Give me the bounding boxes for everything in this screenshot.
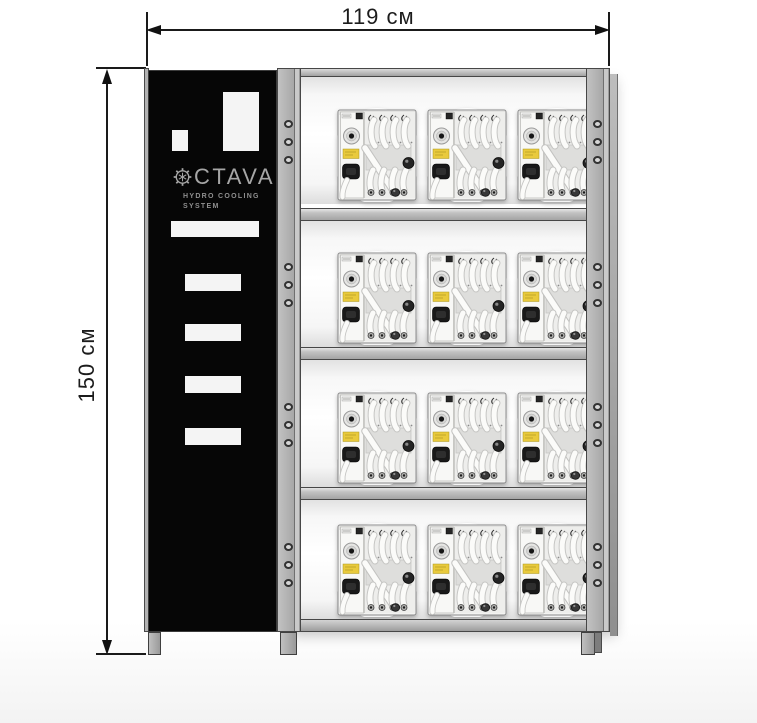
cooling-unit (337, 521, 417, 617)
shelf-bar (277, 347, 610, 360)
front-door-panel: CTAVA HYDRO COOLING SYSTEM (148, 70, 277, 632)
panel-vent (185, 376, 241, 393)
brand-subtitle-line1: HYDRO COOLING (183, 192, 260, 202)
cooling-unit (337, 106, 417, 202)
cabinet-leg (148, 632, 161, 655)
rack-post-left (277, 68, 301, 632)
shelf-bar (277, 208, 610, 221)
panel-vent-wide (171, 221, 259, 237)
cooling-unit (517, 106, 597, 202)
panel-vent (185, 428, 241, 445)
mounting-hole (593, 421, 602, 429)
cooling-unit (517, 249, 597, 345)
cabinet-leg (280, 632, 297, 655)
mounting-hole (284, 421, 293, 429)
cooling-unit (337, 389, 417, 485)
rack-post-right (586, 68, 610, 632)
mounting-hole (284, 138, 293, 146)
shelf-bar (277, 487, 610, 500)
cooling-unit (427, 249, 507, 345)
mounting-hole (284, 156, 293, 164)
shelf-rack (277, 68, 610, 632)
mounting-hole (593, 439, 602, 447)
mounting-hole (593, 120, 602, 128)
cooling-unit (517, 389, 597, 485)
mounting-hole (593, 561, 602, 569)
panel-window-large (223, 92, 259, 151)
brand-subtitle: HYDRO COOLING SYSTEM (183, 192, 260, 212)
rack-level (301, 360, 586, 487)
brand-subtitle-line2: SYSTEM (183, 202, 260, 212)
mounting-hole (284, 579, 293, 587)
cooling-unit (427, 521, 507, 617)
mounting-hole (284, 403, 293, 411)
mounting-hole (284, 120, 293, 128)
rack-level (301, 77, 586, 204)
cabinet-side-depth (610, 74, 618, 636)
cooling-unit (427, 389, 507, 485)
octava-gear-icon (173, 166, 192, 188)
mounting-hole (284, 299, 293, 307)
cooling-unit (337, 249, 417, 345)
diagram-scene: 119 см 150 см (0, 0, 757, 723)
brand-logo-text: CTAVA (194, 166, 275, 188)
mounting-hole (284, 281, 293, 289)
mounting-hole (284, 561, 293, 569)
mounting-hole (593, 579, 602, 587)
panel-vent (185, 324, 241, 341)
rack-level (301, 500, 586, 619)
brand-logo: CTAVA (173, 164, 275, 190)
mounting-hole (593, 138, 602, 146)
panel-window-small (172, 130, 188, 151)
cooling-cabinet: CTAVA HYDRO COOLING SYSTEM (0, 0, 757, 723)
panel-vent (185, 274, 241, 291)
rack-level (301, 221, 586, 347)
mounting-hole (284, 439, 293, 447)
mounting-hole (593, 263, 602, 271)
cooling-unit (427, 106, 507, 202)
mounting-hole (593, 543, 602, 551)
mounting-hole (284, 543, 293, 551)
cabinet-leg-shade (594, 632, 602, 653)
mounting-hole (593, 403, 602, 411)
rack-bottom-bar (277, 619, 610, 632)
cabinet-leg (581, 632, 595, 655)
mounting-hole (593, 156, 602, 164)
mounting-hole (284, 263, 293, 271)
cooling-unit (517, 521, 597, 617)
mounting-hole (593, 299, 602, 307)
rack-top-bar (277, 68, 610, 77)
mounting-hole (593, 281, 602, 289)
